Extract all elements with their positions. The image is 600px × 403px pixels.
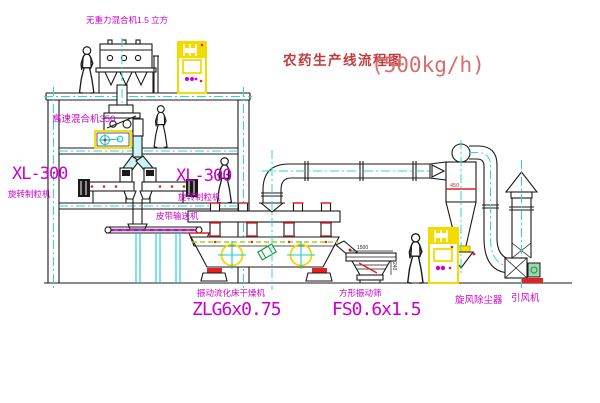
conveyor-legs (136, 233, 180, 283)
cabinet-button (190, 77, 194, 81)
dim-screen-width: 1500 (357, 245, 368, 251)
fan-motor (528, 263, 540, 277)
dryer-feet (201, 268, 332, 281)
control-cabinet-ground (429, 228, 458, 283)
drawing-canvas: 农药生产线流程图 (500kg/h) 无重力混合机1.5 立方 高速混合机350… (0, 0, 600, 403)
label-granulator-right-model: XL-300 (176, 166, 232, 186)
control-cabinet-top (178, 42, 206, 93)
label-dryer-name: 振动流化床干燥机 (197, 288, 266, 298)
label-screen-model: FS0.6x1.5 (332, 299, 421, 320)
label-gravity-mixer: 无重力混合机1.5 立方 (86, 15, 168, 25)
person-level-2 (154, 106, 167, 148)
indicator-lamp (200, 80, 203, 83)
cabinet-button (436, 266, 440, 270)
label-high-speed-mixer: 高速混合机350 (52, 113, 115, 125)
hood-body-connectors (209, 222, 332, 237)
screen-body (352, 261, 390, 275)
cabinet-button (195, 78, 198, 81)
label-belt-conveyor: 皮带输送机 (156, 211, 199, 221)
process-flow-diagram: 农药生产线流程图 (500kg/h) 无重力混合机1.5 立方 高速混合机350… (0, 0, 600, 403)
granulator-left (78, 168, 136, 203)
fluid-bed-dryer (188, 203, 340, 281)
mixer-discharge (133, 119, 143, 136)
label-cyclone: 旋风除尘器 (455, 294, 503, 306)
label-granulator-right-name: 旋转制粒机 (178, 192, 221, 202)
dim-screen-height: 240 (391, 262, 397, 271)
person-ground-level (408, 234, 423, 283)
indicator-lamp (201, 44, 204, 47)
dryer-hood (188, 211, 340, 222)
indicator-lamp (451, 246, 454, 249)
person-roof-level (79, 47, 93, 93)
draft-fan (505, 258, 543, 283)
belt-conveyor (105, 227, 202, 283)
fan-base (522, 278, 543, 283)
label-screen-name: 方形振动筛 (339, 288, 382, 298)
label-dryer-model: ZLG6x0.75 (192, 299, 281, 320)
label-draft-fan: 引风机 (511, 292, 540, 304)
cabinet-button (441, 266, 445, 270)
label-granulator-left-model: XL-300 (12, 164, 68, 184)
cabinet-button (185, 77, 189, 81)
indicator-lamp (449, 267, 452, 270)
dim-cyclone-band: 450 (450, 183, 459, 189)
label-granulator-left-name: 旋转制粒机 (8, 189, 51, 199)
title-capacity: (500kg/h) (371, 53, 485, 77)
